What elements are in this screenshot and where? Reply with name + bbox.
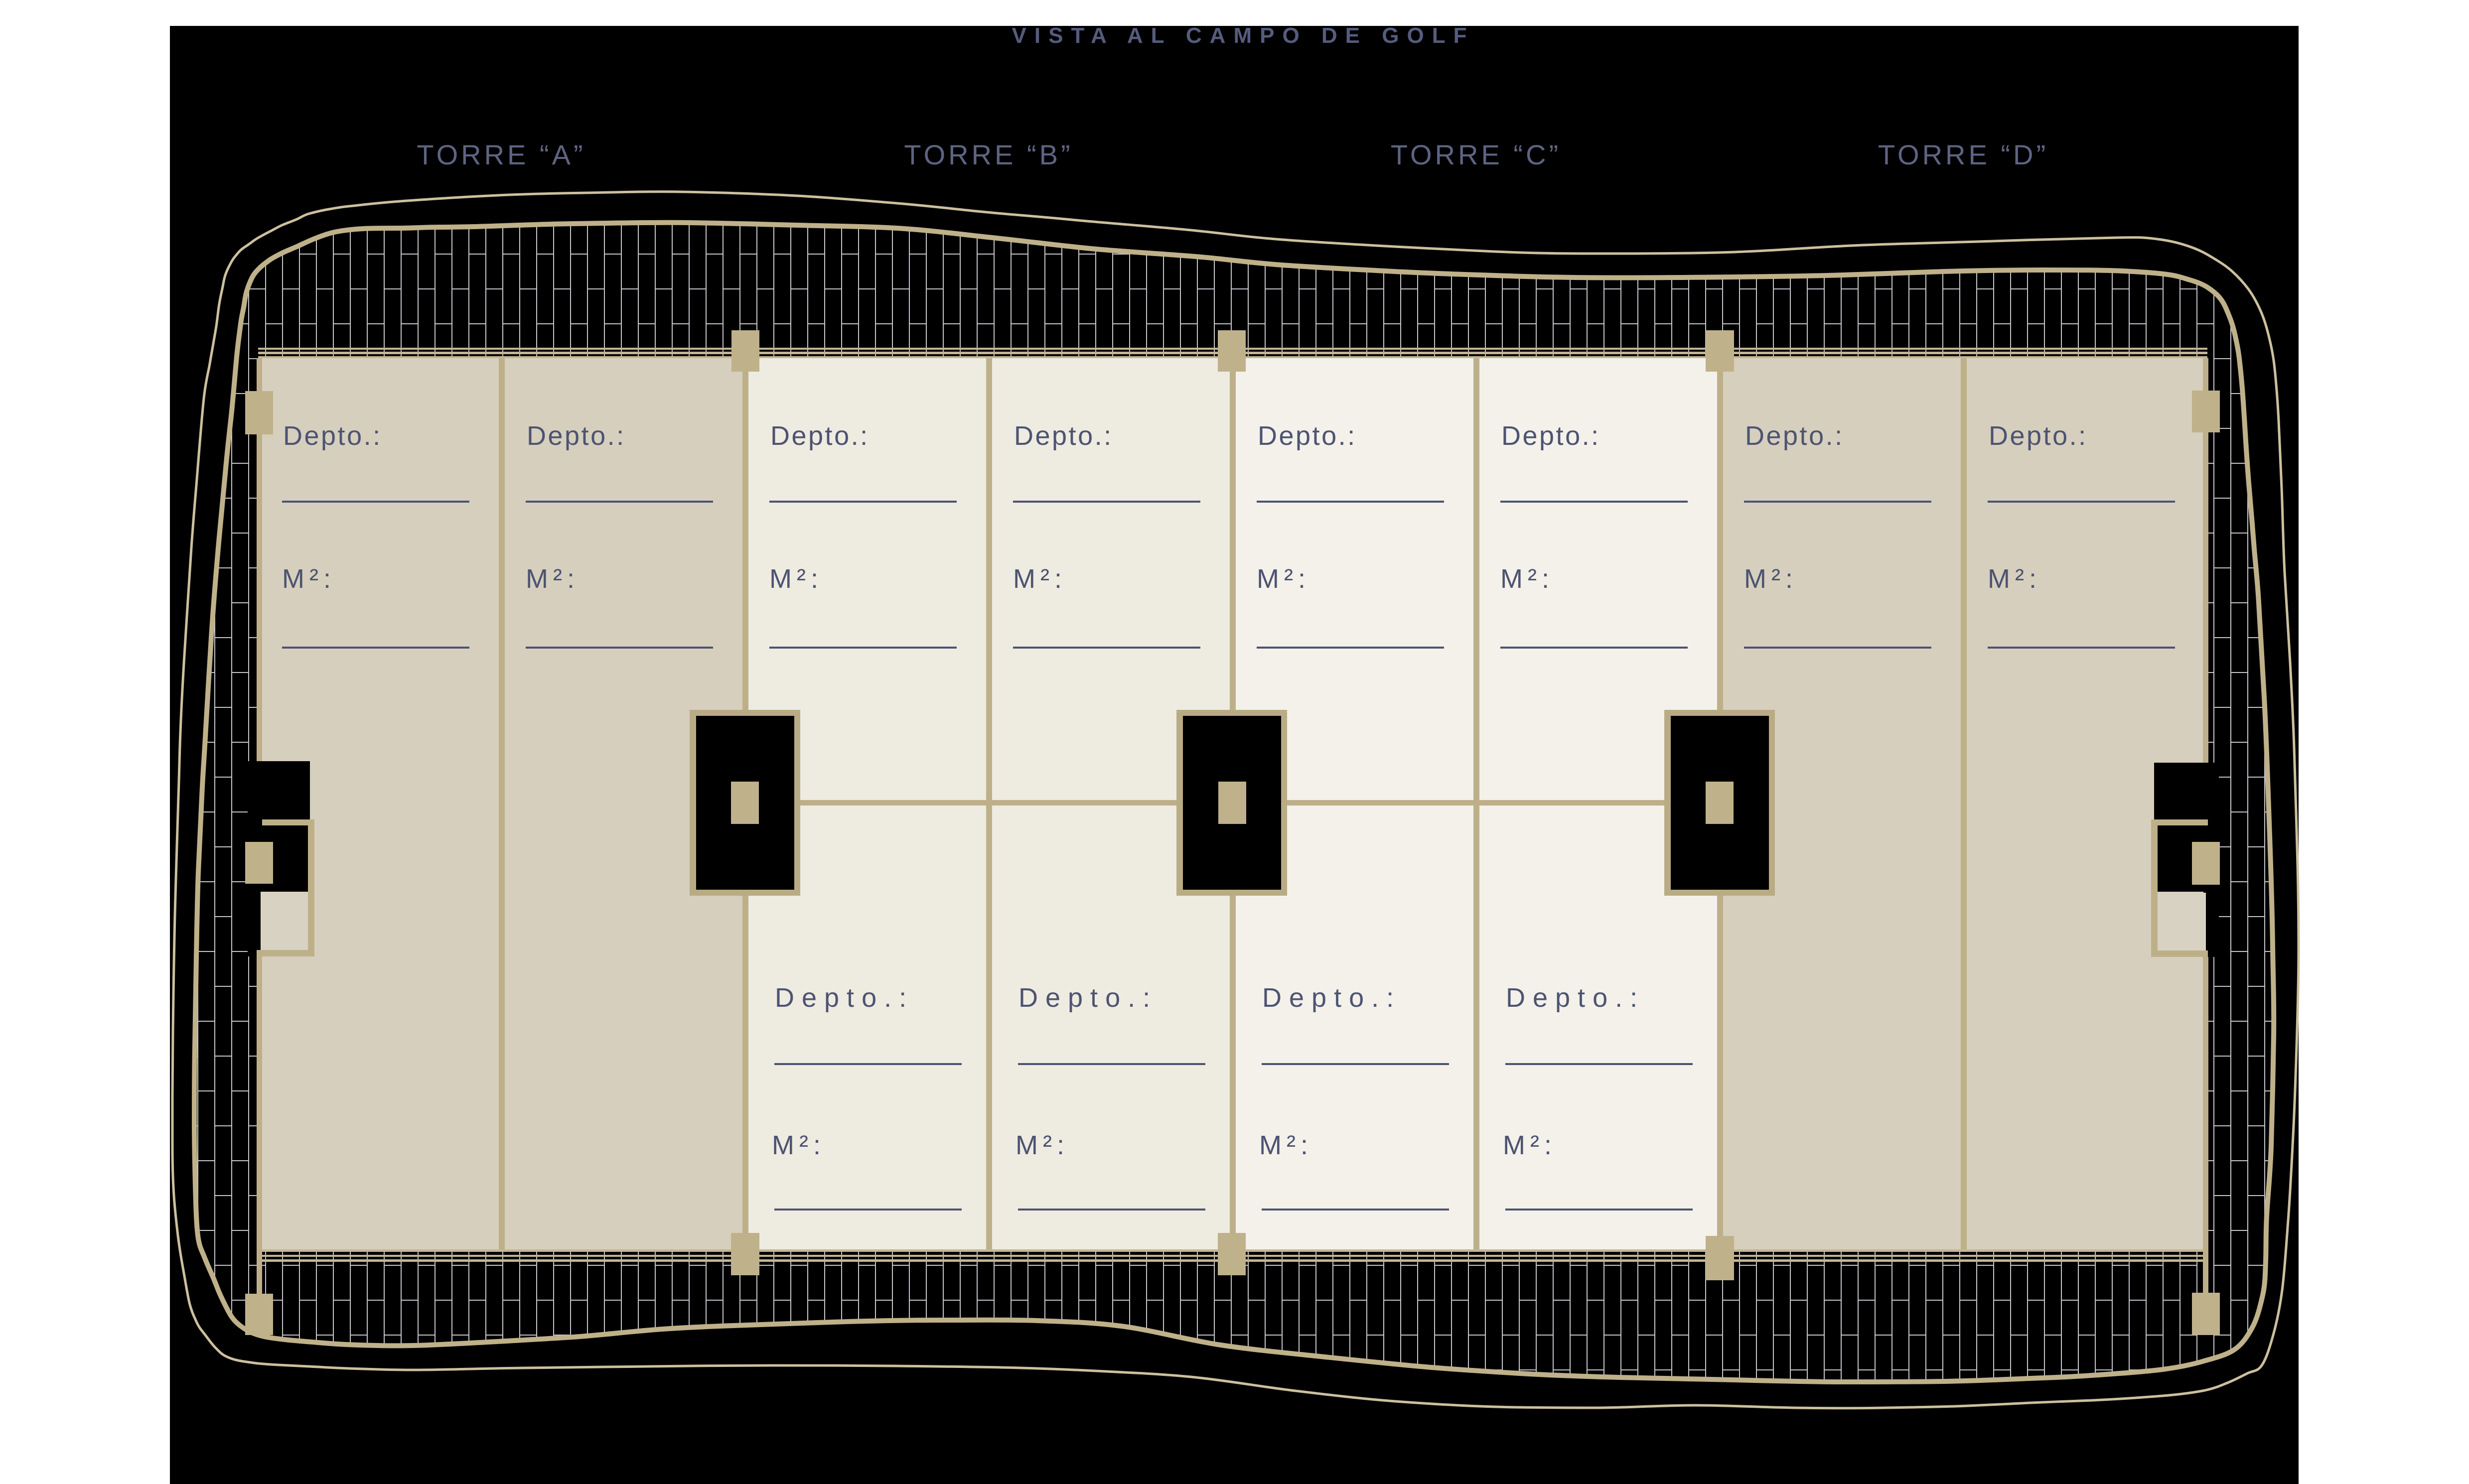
svg-text:Depto.:: Depto.: — [1262, 983, 1401, 1013]
svg-text:TORRE “A”: TORRE “A” — [417, 139, 585, 170]
svg-text:M²:: M²: — [282, 564, 336, 594]
svg-text:Depto.:: Depto.: — [527, 421, 626, 451]
svg-text:TORRE “C”: TORRE “C” — [1391, 139, 1561, 170]
svg-text:TORRE “D”: TORRE “D” — [1878, 139, 2048, 170]
svg-text:Depto.:: Depto.: — [775, 983, 914, 1013]
svg-text:M²:: M²: — [1744, 564, 1798, 594]
svg-text:TORRE “B”: TORRE “B” — [904, 139, 1073, 170]
svg-text:Depto.:: Depto.: — [1989, 421, 2088, 451]
svg-text:M²:: M²: — [1259, 1130, 1313, 1160]
svg-text:M²:: M²: — [1257, 564, 1310, 594]
svg-text:M²:: M²: — [769, 564, 823, 594]
svg-text:Depto.:: Depto.: — [1745, 421, 1844, 451]
svg-text:M²:: M²: — [1988, 564, 2041, 594]
svg-text:M²:: M²: — [526, 564, 580, 594]
svg-text:M²:: M²: — [1500, 564, 1554, 594]
svg-text:M²:: M²: — [772, 1130, 826, 1160]
svg-text:Depto.:: Depto.: — [1506, 983, 1645, 1013]
svg-text:Depto.:: Depto.: — [1018, 983, 1158, 1013]
svg-text:Depto.:: Depto.: — [770, 421, 870, 451]
svg-text:VISTA AL CAMPO DE GOLF: VISTA AL CAMPO DE GOLF — [1012, 23, 1475, 48]
svg-text:Depto.:: Depto.: — [1501, 421, 1600, 451]
svg-text:Depto.:: Depto.: — [1014, 421, 1113, 451]
svg-text:Depto.:: Depto.: — [283, 421, 382, 451]
svg-text:M²:: M²: — [1503, 1130, 1557, 1160]
svg-text:M²:: M²: — [1016, 1130, 1069, 1160]
svg-text:M²:: M²: — [1013, 564, 1067, 594]
svg-text:Depto.:: Depto.: — [1258, 421, 1357, 451]
